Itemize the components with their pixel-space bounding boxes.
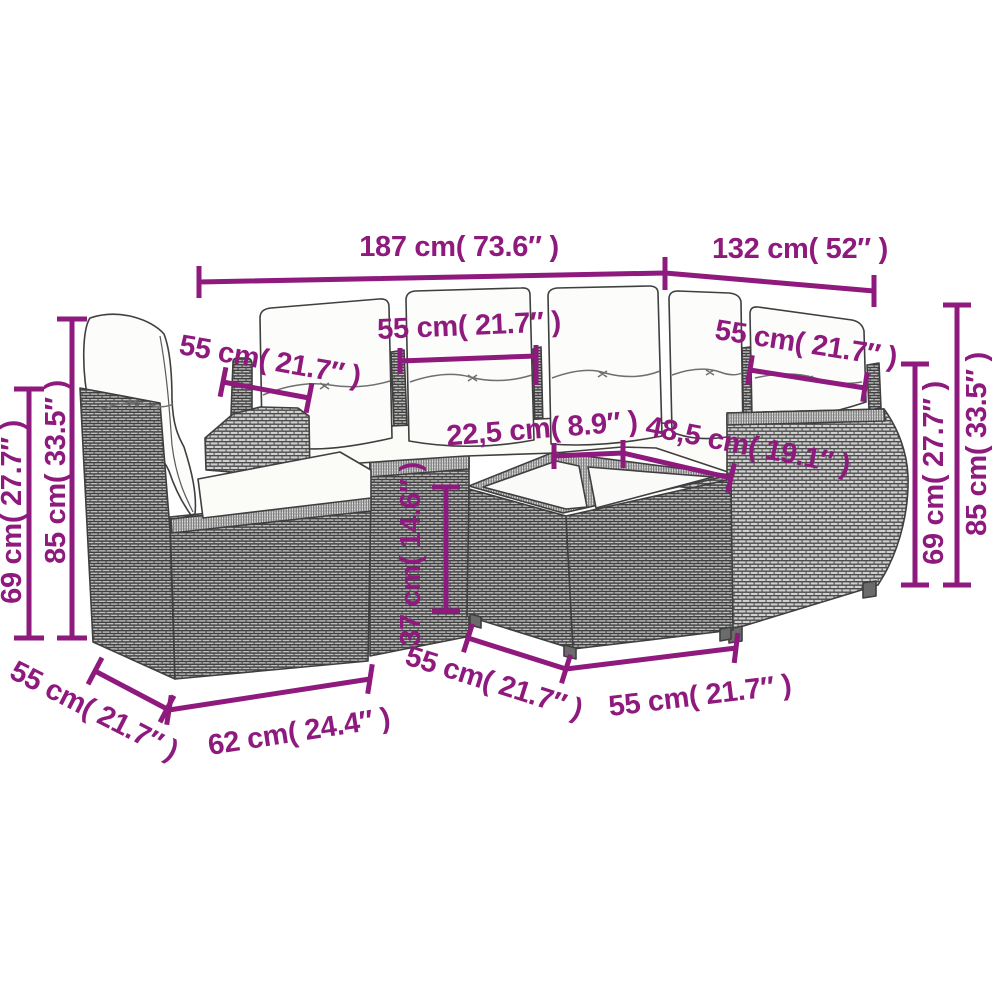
svg-text:37 cm( 14.6″ ): 37 cm( 14.6″ ) bbox=[395, 462, 427, 646]
svg-text:69 cm( 27.7″ ): 69 cm( 27.7″ ) bbox=[0, 420, 28, 604]
svg-text:85 cm( 33.5″ ): 85 cm( 33.5″ ) bbox=[40, 380, 72, 564]
svg-text:85 cm( 33.5″ ): 85 cm( 33.5″ ) bbox=[961, 352, 993, 536]
svg-text:187 cm( 73.6″ ): 187 cm( 73.6″ ) bbox=[359, 231, 559, 263]
svg-text:69 cm( 27.7″ ): 69 cm( 27.7″ ) bbox=[918, 381, 950, 565]
svg-text:132 cm( 52″ ): 132 cm( 52″ ) bbox=[712, 233, 888, 265]
